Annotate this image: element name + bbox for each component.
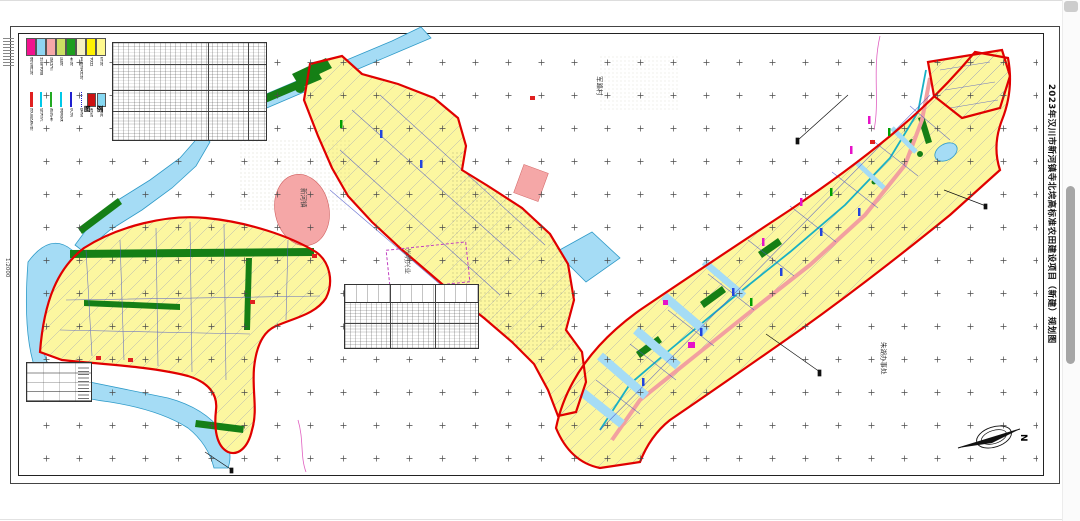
legend-item: 排水沟 [36,83,46,134]
legend-symbol [57,92,66,107]
legend-swatch [66,38,76,56]
signature-block [26,362,92,402]
legend-item: 坑塘水面 [36,38,46,83]
scrollbar-top-button[interactable] [1064,1,1078,12]
scale-label: 1:2000 [1,258,10,292]
legend-item: 河流 [66,83,76,134]
legend-item-label: 旱地 [99,57,104,83]
legend-symbol [27,92,36,107]
map-label: 光明兴业 [404,248,411,274]
legend-swatch [26,38,36,56]
legend-item: 灌溉渠 [56,83,66,134]
legend-item-label: 园地 [59,57,64,83]
legend-item-label: 坑塘水面 [39,57,44,83]
legend-item-label: 水田 [89,57,94,83]
legend-item: 防护林 [46,83,56,134]
legend-item-label: 项目区界线 [29,108,34,134]
legend-swatch [46,38,56,56]
legend-swatch [76,38,86,56]
legend-item: 建设用地 [26,38,36,83]
legend-item: 其他农用地 [76,38,86,83]
planning-map-viewer: { "titleblock": { "title": "2023年汉川市新河镇寺… [0,0,1080,521]
scrollbar-thumb[interactable] [1066,186,1075,364]
legend-title: 图 例 [84,103,105,113]
legend-item-label: 居民点 [49,57,54,83]
legend-item: 林地 [66,38,76,83]
legend-item-label: 河流 [69,108,74,134]
legend-item-label: 灌溉渠 [59,108,64,134]
legend-symbol [37,92,46,107]
legend-area-row: 建设用地坑塘水面居民点园地林地其他农用地水田旱地 [26,38,108,83]
statistics-table-center [344,284,479,349]
legend-swatch [86,38,96,56]
legend-item: 旱地 [96,38,106,83]
legend-item: 水田 [86,38,96,83]
legend-item-label: 建设用地 [29,57,34,83]
legend-item-label: 其他农用地 [79,57,84,83]
statistics-table-topleft [112,42,267,141]
map-label: 朱湖办事处 [880,342,887,375]
legend: 建设用地坑塘水面居民点园地林地其他农用地水田旱地 项目区界线排水沟防护林灌溉渠河… [26,38,108,134]
sheet-title: 2023年汉川市新河镇寺北垸高标准农田建设项目（新建）规划图 [1044,84,1058,364]
map-label: 新河镇 [300,188,307,208]
legend-item-label: 管道 [79,108,84,134]
legend-item: 园地 [56,38,66,83]
legend-swatch [96,38,106,56]
legend-item: 项目区界线 [26,83,36,134]
map-label: 军路村 [596,76,603,96]
legend-item-label: 防护林 [49,108,54,134]
north-label: N [1018,434,1028,442]
legend-item-label: 林地 [69,57,74,83]
legend-symbol [47,92,56,107]
legend-swatch [56,38,66,56]
legend-item: 居民点 [46,38,56,83]
legend-symbol [67,92,76,107]
legend-swatch [36,38,46,56]
legend-item-label: 排水沟 [39,108,44,134]
signature-text-noise [78,365,89,399]
